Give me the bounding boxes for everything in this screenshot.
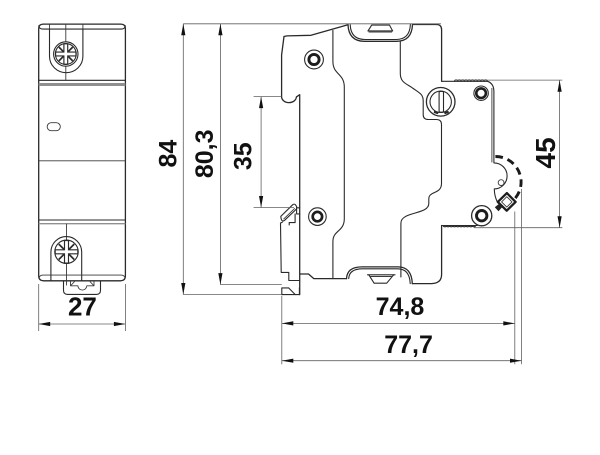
svg-text:77,7: 77,7 bbox=[384, 331, 433, 359]
svg-text:84: 84 bbox=[155, 140, 183, 168]
svg-text:27: 27 bbox=[68, 292, 97, 322]
svg-text:35: 35 bbox=[230, 142, 258, 170]
svg-text:45: 45 bbox=[530, 137, 561, 168]
svg-text:80,3: 80,3 bbox=[191, 129, 219, 178]
svg-text:74,8: 74,8 bbox=[376, 293, 425, 321]
